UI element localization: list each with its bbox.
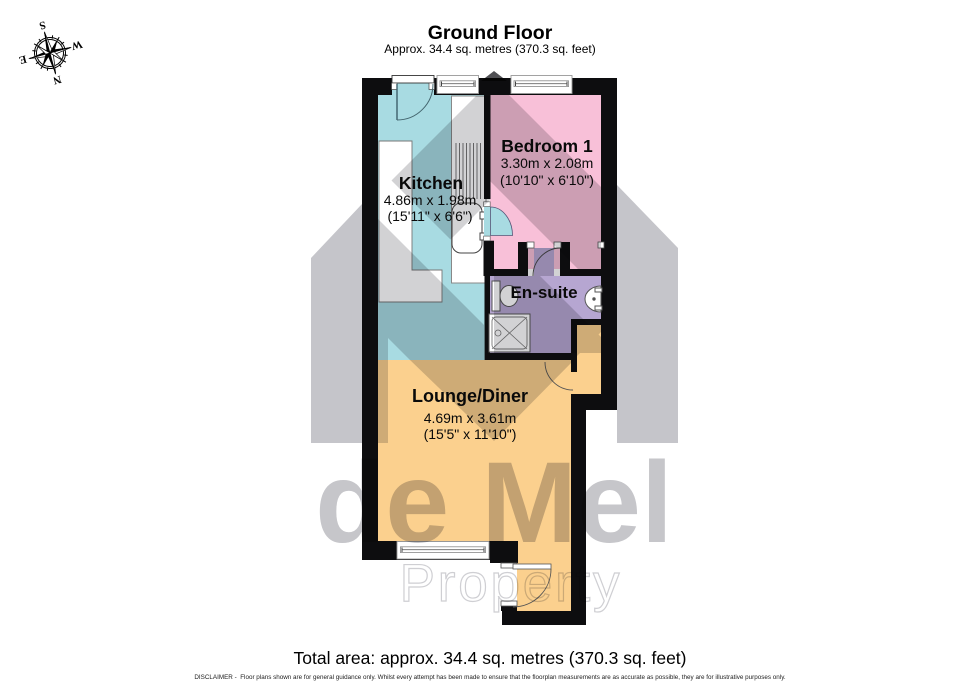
svg-text:de Mel: de Mel: [315, 439, 673, 567]
svg-text:Property: Property: [400, 554, 623, 613]
